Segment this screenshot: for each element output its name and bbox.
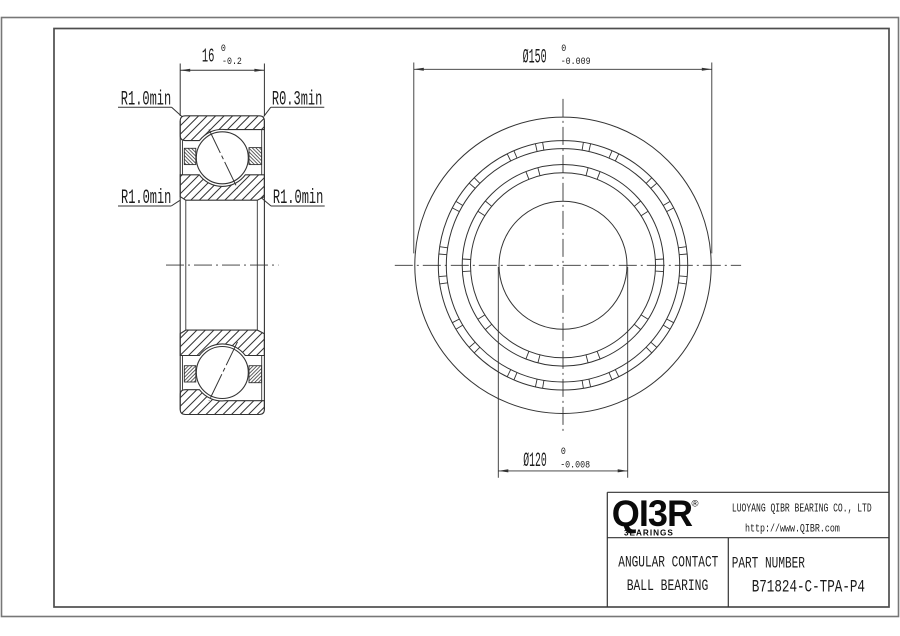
- svg-text:LUOYANG QIBR BEARING CO., LTD: LUOYANG QIBR BEARING CO., LTD: [732, 502, 872, 516]
- svg-text:-0.009: -0.009: [561, 55, 591, 67]
- svg-text:Ø120: Ø120: [523, 450, 547, 473]
- svg-text:0: 0: [561, 42, 566, 54]
- svg-text:3EARINGS: 3EARINGS: [624, 528, 674, 537]
- svg-text:B71824-C-TPA-P4: B71824-C-TPA-P4: [752, 576, 865, 597]
- svg-text:16: 16: [202, 45, 215, 67]
- svg-text:PART NUMBER: PART NUMBER: [732, 556, 805, 573]
- svg-text:-0.2: -0.2: [222, 55, 242, 67]
- svg-text:®: ®: [692, 499, 699, 510]
- svg-text:ANGULAR CONTACT: ANGULAR CONTACT: [618, 555, 718, 572]
- svg-text:Ø150: Ø150: [523, 46, 547, 69]
- svg-text:0: 0: [221, 42, 226, 54]
- svg-text:BALL BEARING: BALL BEARING: [627, 577, 709, 595]
- svg-text:http://www.QIBR.com: http://www.QIBR.com: [745, 522, 840, 534]
- svg-text:-0.008: -0.008: [560, 459, 590, 471]
- svg-text:0: 0: [561, 445, 566, 457]
